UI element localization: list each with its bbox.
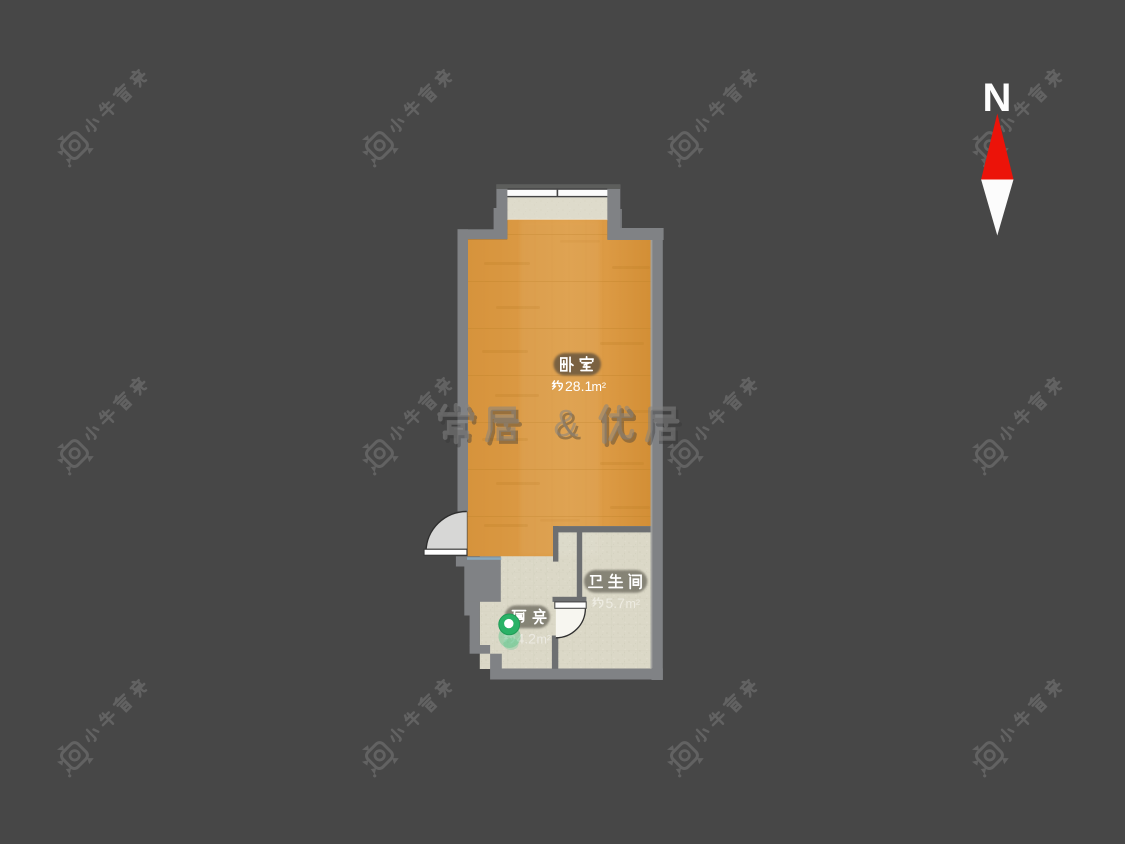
svg-text:5.7: 5.7	[606, 595, 626, 611]
svg-text:m²: m²	[537, 633, 552, 647]
svg-text:N: N	[983, 76, 1012, 120]
svg-text:28.1: 28.1	[565, 378, 592, 394]
svg-text:&: &	[553, 403, 578, 445]
svg-text:m²: m²	[626, 597, 641, 611]
svg-text:m²: m²	[592, 380, 607, 394]
